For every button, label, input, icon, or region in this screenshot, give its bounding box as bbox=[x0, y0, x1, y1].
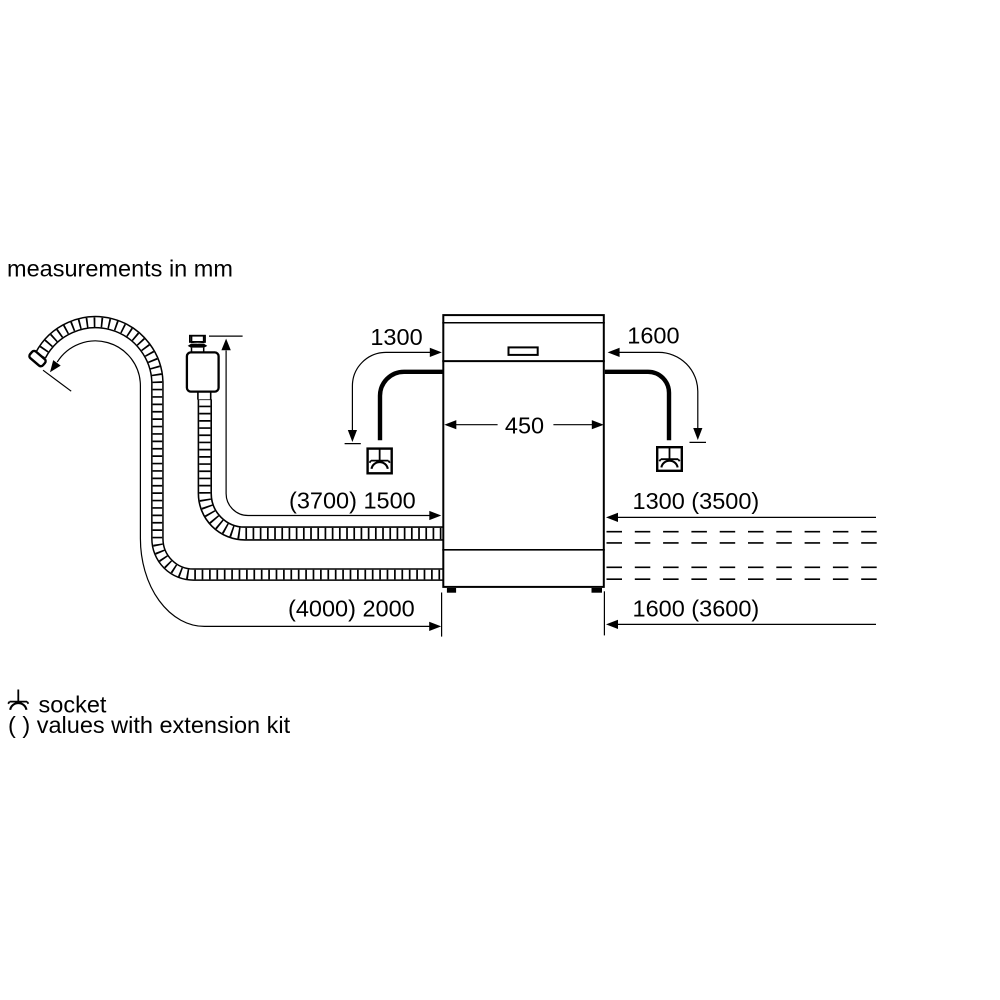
svg-text:( ) values with extension kit: ( ) values with extension kit bbox=[8, 712, 291, 738]
svg-text:1600: 1600 bbox=[627, 323, 679, 349]
svg-text:(4000) 2000: (4000) 2000 bbox=[288, 596, 415, 622]
svg-text:450: 450 bbox=[505, 413, 544, 439]
svg-text:1300: 1300 bbox=[370, 324, 422, 350]
svg-text:(3700) 1500: (3700) 1500 bbox=[289, 488, 416, 514]
svg-text:1300 (3500): 1300 (3500) bbox=[633, 488, 760, 514]
svg-text:1600 (3600): 1600 (3600) bbox=[633, 596, 760, 622]
svg-text:measurements in mm: measurements in mm bbox=[7, 256, 233, 282]
